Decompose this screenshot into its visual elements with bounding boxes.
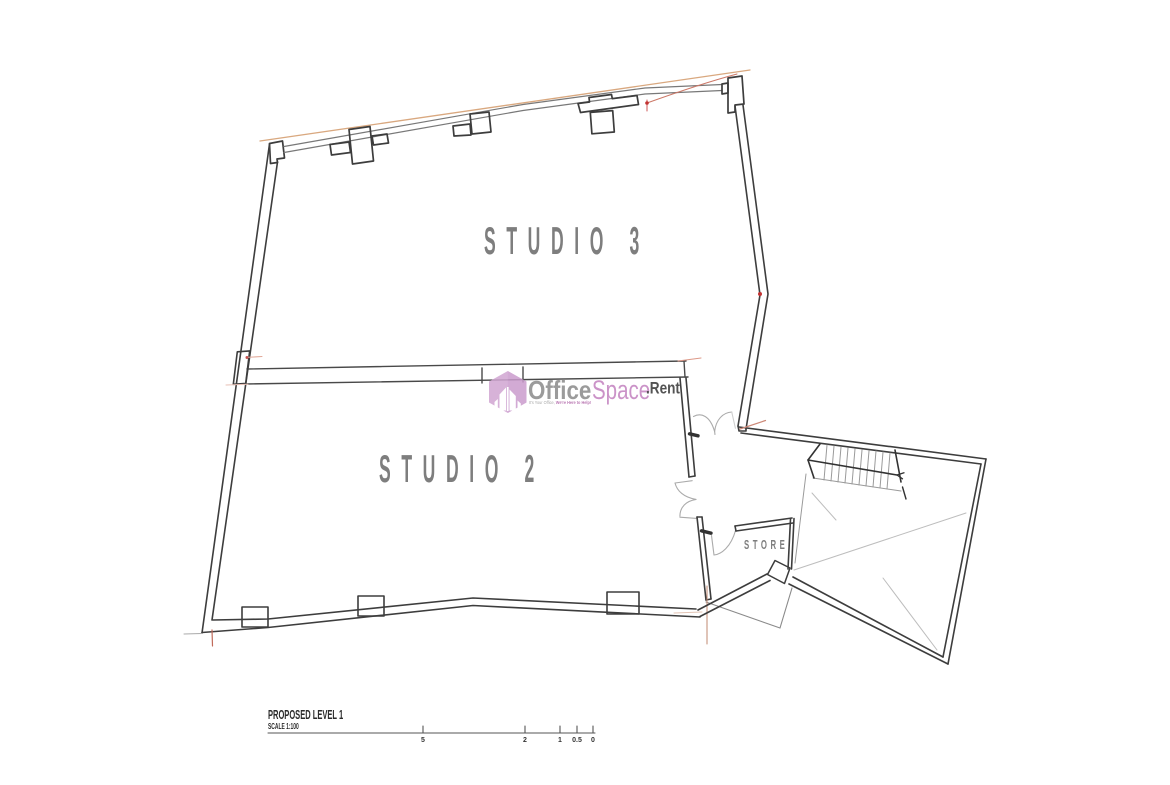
svg-text:1: 1 <box>558 737 562 744</box>
svg-text:SCALE 1:100: SCALE 1:100 <box>268 723 299 731</box>
svg-text:2: 2 <box>523 737 527 744</box>
svg-text:.Rent: .Rent <box>646 379 680 398</box>
svg-text:0: 0 <box>591 737 595 744</box>
svg-text:It's Your Office, We're Here t: It's Your Office, We're Here to Help! <box>529 400 591 405</box>
svg-text:STORE: STORE <box>744 538 788 553</box>
svg-text:STUDIO 3: STUDIO 3 <box>484 220 650 263</box>
svg-text:STUDIO 2: STUDIO 2 <box>379 448 545 491</box>
svg-text:5: 5 <box>421 737 425 744</box>
svg-text:Space: Space <box>592 375 650 405</box>
svg-text:0.5: 0.5 <box>572 737 582 744</box>
svg-text:PROPOSED LEVEL 1: PROPOSED LEVEL 1 <box>268 708 343 723</box>
